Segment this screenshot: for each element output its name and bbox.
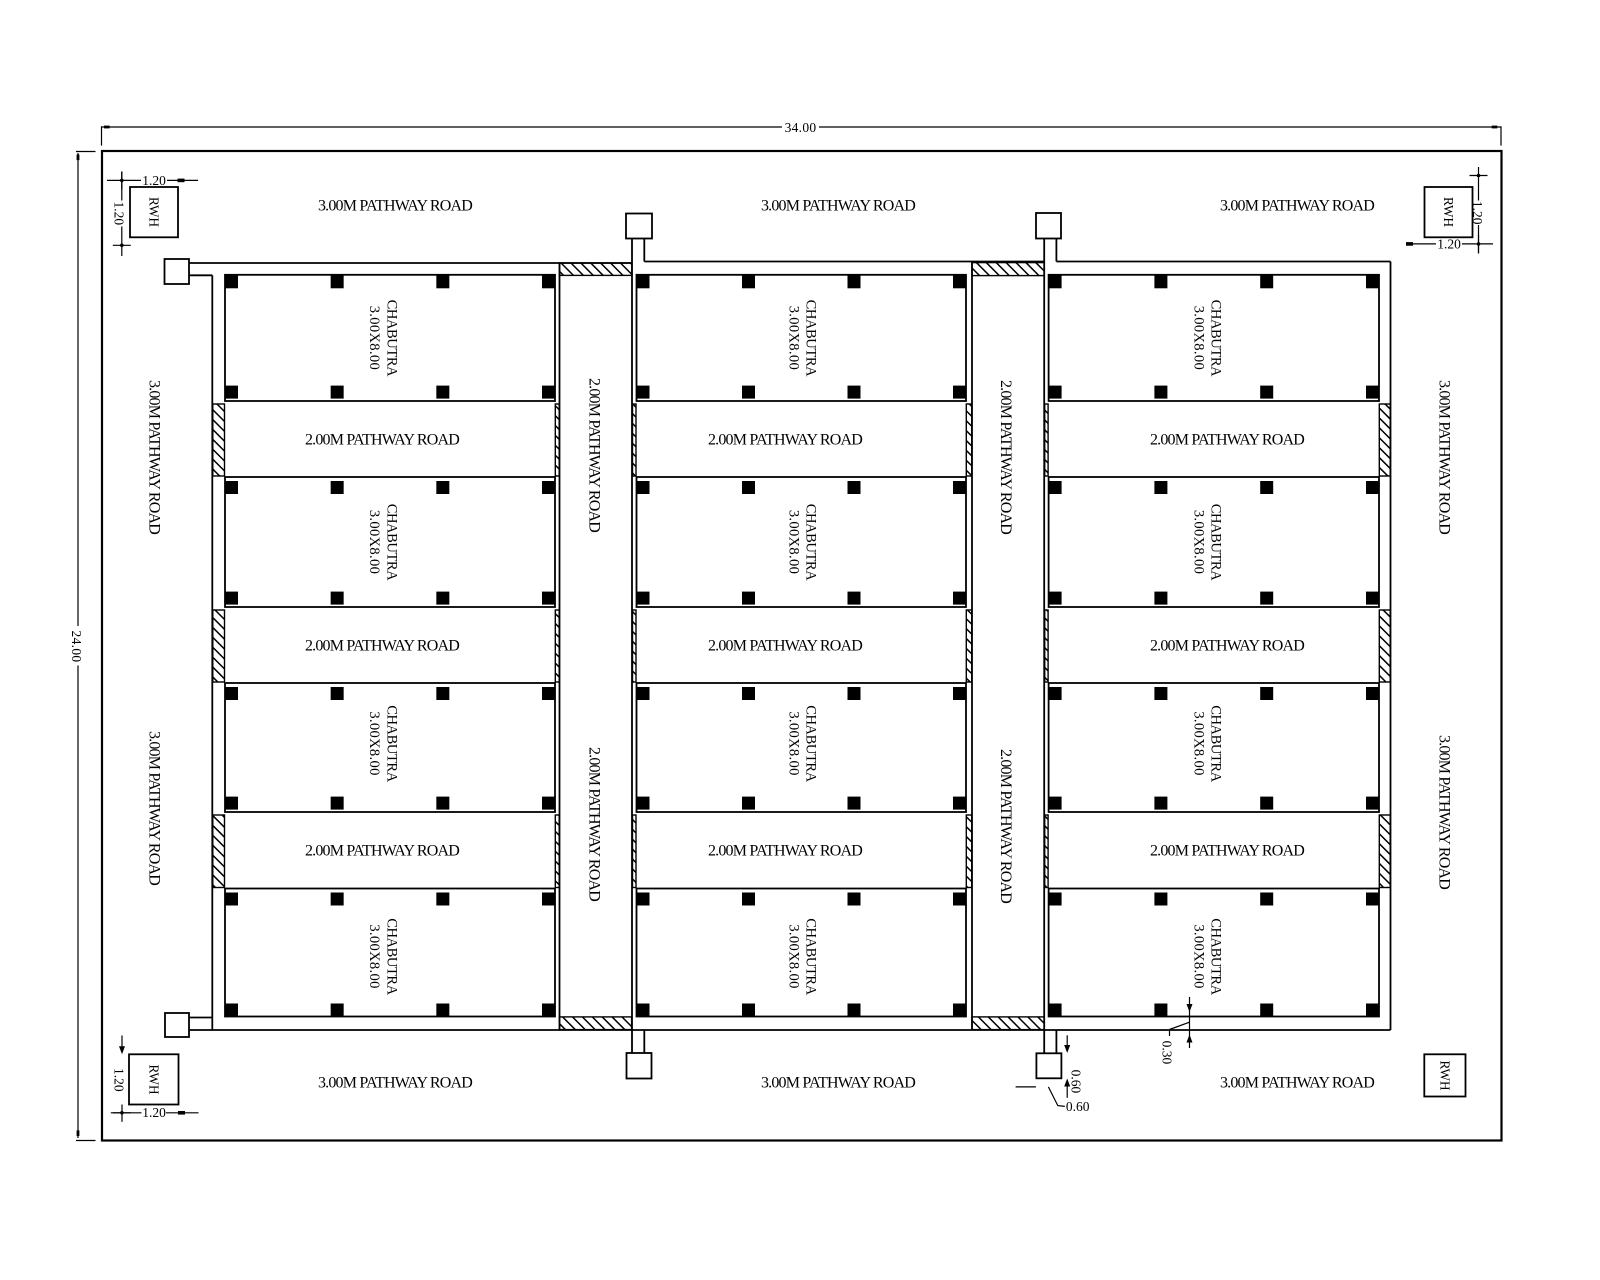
svg-text:0.30: 0.30 [1160,1041,1175,1065]
svg-text:2.00M PATHWAY ROAD: 2.00M PATHWAY ROAD [997,749,1014,903]
svg-text:2.00M PATHWAY ROAD: 2.00M PATHWAY ROAD [997,380,1014,534]
svg-text:3.00M PATHWAY ROAD: 3.00M PATHWAY ROAD [1220,197,1374,214]
svg-text:2.00M PATHWAY ROAD: 2.00M PATHWAY ROAD [708,843,862,860]
svg-text:3.00M PATHWAY ROAD: 3.00M PATHWAY ROAD [1436,380,1453,534]
svg-text:3.00M PATHWAY ROAD: 3.00M PATHWAY ROAD [761,197,915,214]
svg-text:CHABUTRA: CHABUTRA [383,705,399,782]
svg-text:2.00M PATHWAY ROAD: 2.00M PATHWAY ROAD [1150,637,1304,654]
svg-text:1.20: 1.20 [142,1105,166,1120]
svg-text:3.00X8.00: 3.00X8.00 [1191,924,1207,988]
svg-text:3.00M PATHWAY ROAD: 3.00M PATHWAY ROAD [1220,1074,1374,1091]
svg-text:2.00M PATHWAY ROAD: 2.00M PATHWAY ROAD [585,378,602,532]
svg-text:RWH: RWH [1438,1060,1453,1091]
svg-text:2.00M PATHWAY ROAD: 2.00M PATHWAY ROAD [305,431,459,448]
svg-text:1.20: 1.20 [112,201,127,225]
svg-text:2.00M PATHWAY ROAD: 2.00M PATHWAY ROAD [305,843,459,860]
svg-text:CHABUTRA: CHABUTRA [1208,705,1224,782]
svg-text:3.00M PATHWAY ROAD: 3.00M PATHWAY ROAD [761,1074,915,1091]
svg-text:RWH: RWH [1441,197,1456,228]
svg-text:CHABUTRA: CHABUTRA [803,300,819,377]
svg-text:CHABUTRA: CHABUTRA [803,918,819,995]
svg-text:2.00M PATHWAY ROAD: 2.00M PATHWAY ROAD [585,747,602,901]
svg-text:CHABUTRA: CHABUTRA [383,504,399,581]
svg-text:3.00X8.00: 3.00X8.00 [785,924,801,988]
svg-text:3.00M PATHWAY ROAD: 3.00M PATHWAY ROAD [1436,735,1453,889]
svg-text:CHABUTRA: CHABUTRA [1208,504,1224,581]
svg-text:3.00M PATHWAY ROAD: 3.00M PATHWAY ROAD [146,731,163,885]
svg-text:3.00X8.00: 3.00X8.00 [366,924,382,988]
svg-text:CHABUTRA: CHABUTRA [383,918,399,995]
svg-text:1.20: 1.20 [142,173,166,188]
svg-text:3.00M PATHWAY ROAD: 3.00M PATHWAY ROAD [318,197,472,214]
svg-text:3.00X8.00: 3.00X8.00 [366,510,382,574]
svg-text:3.00M PATHWAY ROAD: 3.00M PATHWAY ROAD [318,1074,472,1091]
svg-text:3.00M PATHWAY ROAD: 3.00M PATHWAY ROAD [146,380,163,534]
svg-text:0.60: 0.60 [1069,1070,1084,1094]
svg-text:3.00X8.00: 3.00X8.00 [1191,711,1207,775]
svg-text:3.00X8.00: 3.00X8.00 [785,510,801,574]
svg-text:RWH: RWH [146,197,161,228]
svg-text:CHABUTRA: CHABUTRA [803,504,819,581]
svg-text:1.20: 1.20 [1470,201,1485,225]
svg-text:CHABUTRA: CHABUTRA [1208,918,1224,995]
svg-text:2.00M PATHWAY ROAD: 2.00M PATHWAY ROAD [305,637,459,654]
svg-text:34.00: 34.00 [785,120,817,135]
svg-text:2.00M PATHWAY ROAD: 2.00M PATHWAY ROAD [1150,843,1304,860]
svg-text:2.00M PATHWAY ROAD: 2.00M PATHWAY ROAD [708,431,862,448]
svg-text:2.00M PATHWAY ROAD: 2.00M PATHWAY ROAD [1150,431,1304,448]
svg-text:3.00X8.00: 3.00X8.00 [785,711,801,775]
svg-text:2.00M PATHWAY ROAD: 2.00M PATHWAY ROAD [708,637,862,654]
svg-text:CHABUTRA: CHABUTRA [803,705,819,782]
svg-text:0.60: 0.60 [1066,1099,1090,1114]
svg-text:3.00X8.00: 3.00X8.00 [366,306,382,370]
svg-text:3.00X8.00: 3.00X8.00 [1191,306,1207,370]
svg-text:3.00X8.00: 3.00X8.00 [366,711,382,775]
svg-text:1.20: 1.20 [111,1068,126,1092]
svg-text:CHABUTRA: CHABUTRA [1208,300,1224,377]
svg-text:3.00X8.00: 3.00X8.00 [785,306,801,370]
svg-text:1.20: 1.20 [1437,236,1461,251]
svg-text:CHABUTRA: CHABUTRA [383,300,399,377]
svg-text:RWH: RWH [147,1064,162,1095]
svg-text:3.00X8.00: 3.00X8.00 [1191,510,1207,574]
svg-text:24.00: 24.00 [69,631,84,663]
